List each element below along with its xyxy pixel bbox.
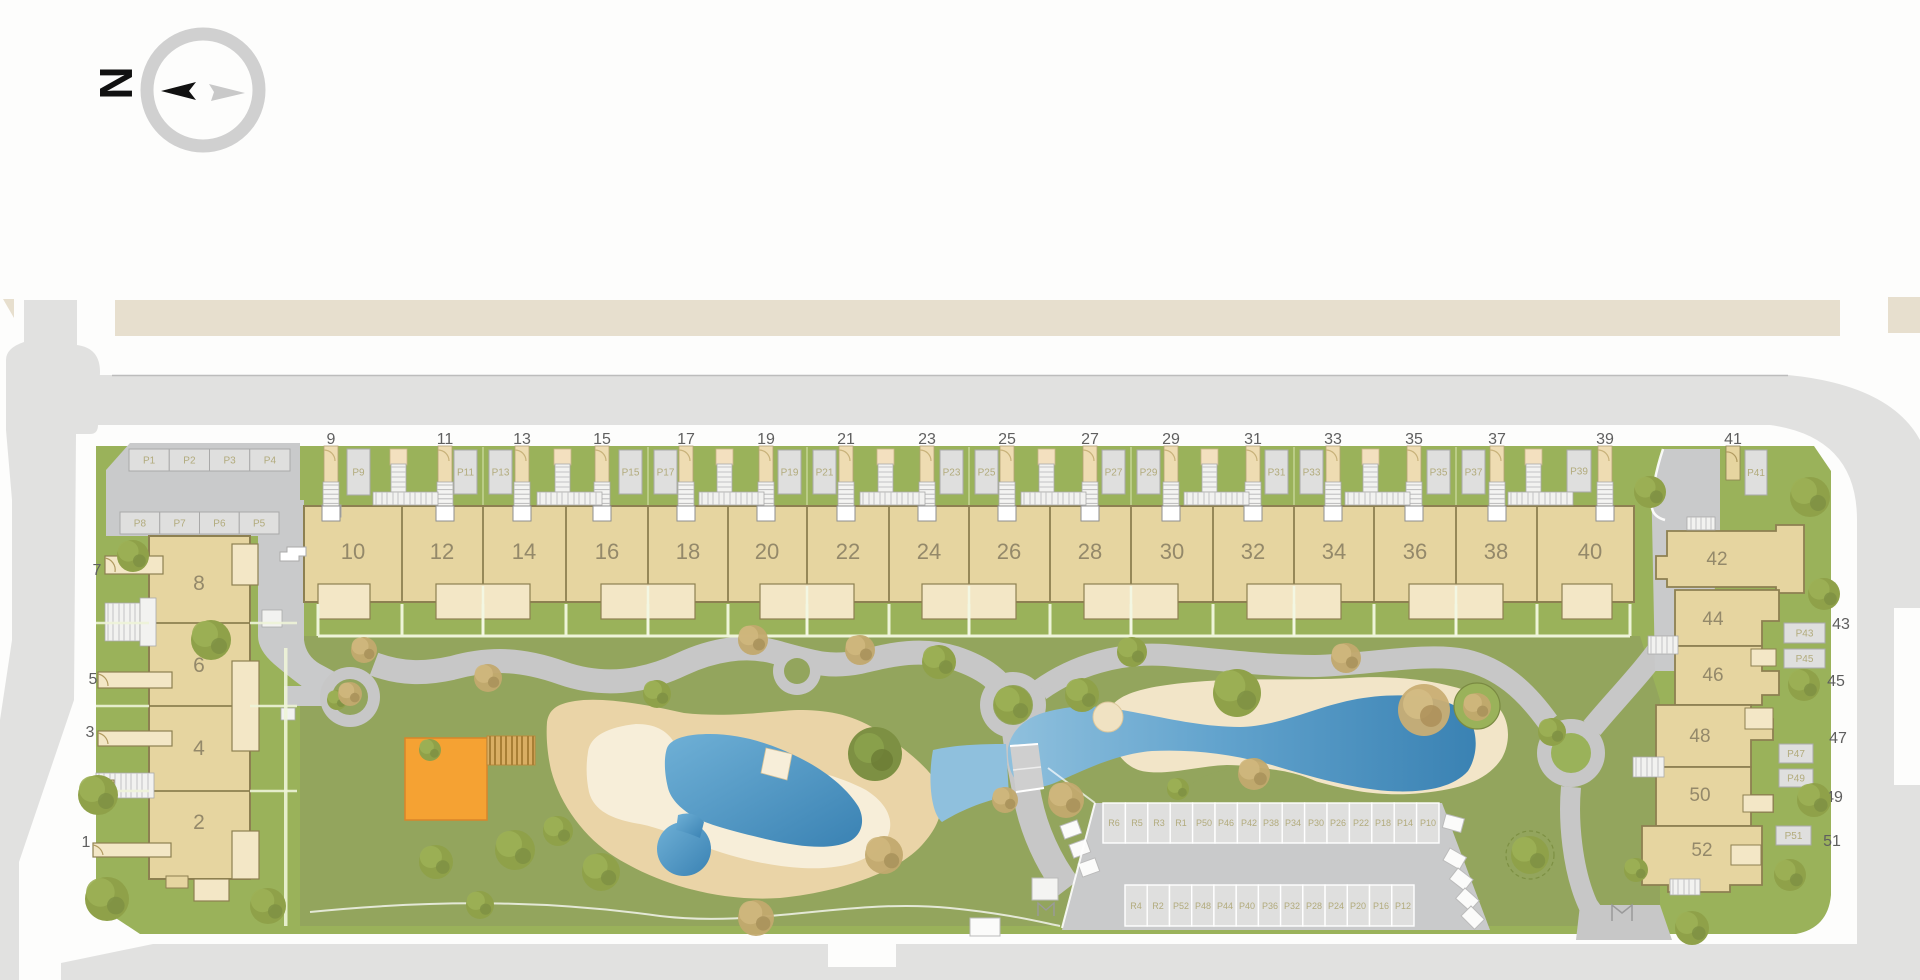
svg-text:9: 9 (327, 431, 336, 448)
svg-text:48: 48 (1689, 726, 1710, 747)
svg-text:P33: P33 (1303, 468, 1321, 479)
svg-text:P2: P2 (183, 456, 196, 467)
svg-text:12: 12 (430, 539, 454, 564)
svg-text:P25: P25 (978, 468, 996, 479)
svg-text:P6: P6 (213, 519, 226, 530)
svg-text:20: 20 (755, 539, 779, 564)
svg-text:R6: R6 (1108, 818, 1120, 828)
svg-text:51: 51 (1823, 833, 1841, 850)
svg-text:2: 2 (193, 811, 205, 834)
svg-text:40: 40 (1578, 539, 1602, 564)
svg-text:45: 45 (1827, 673, 1845, 690)
svg-text:4: 4 (193, 737, 205, 760)
svg-text:P3: P3 (223, 456, 236, 467)
svg-text:28: 28 (1078, 539, 1102, 564)
svg-text:25: 25 (998, 431, 1016, 448)
svg-text:27: 27 (1081, 431, 1099, 448)
svg-text:10: 10 (341, 539, 365, 564)
svg-text:P31: P31 (1268, 468, 1286, 479)
svg-text:P17: P17 (657, 468, 675, 479)
svg-text:P38: P38 (1263, 818, 1279, 828)
svg-text:8: 8 (193, 572, 205, 595)
svg-text:11: 11 (437, 431, 454, 448)
svg-text:P13: P13 (492, 468, 510, 479)
svg-text:26: 26 (997, 539, 1021, 564)
svg-text:34: 34 (1322, 539, 1346, 564)
svg-text:P32: P32 (1284, 901, 1300, 911)
svg-text:R3: R3 (1153, 818, 1165, 828)
svg-text:P12: P12 (1395, 901, 1411, 911)
svg-text:R1: R1 (1175, 818, 1187, 828)
svg-text:P29: P29 (1140, 468, 1158, 479)
svg-text:P30: P30 (1308, 818, 1324, 828)
svg-text:P5: P5 (253, 519, 266, 530)
svg-text:50: 50 (1689, 785, 1710, 806)
svg-text:35: 35 (1405, 431, 1423, 448)
svg-text:P27: P27 (1105, 468, 1123, 479)
svg-text:P39: P39 (1570, 467, 1588, 478)
svg-text:P52: P52 (1173, 901, 1189, 911)
svg-text:P26: P26 (1330, 818, 1346, 828)
svg-text:24: 24 (917, 539, 941, 564)
svg-text:1: 1 (82, 834, 91, 851)
svg-text:16: 16 (595, 539, 619, 564)
svg-text:P28: P28 (1306, 901, 1322, 911)
svg-text:P18: P18 (1375, 818, 1391, 828)
svg-text:P10: P10 (1420, 818, 1436, 828)
svg-text:P36: P36 (1262, 901, 1278, 911)
svg-text:P40: P40 (1239, 901, 1255, 911)
svg-text:29: 29 (1162, 431, 1180, 448)
svg-text:23: 23 (918, 431, 936, 448)
svg-text:P34: P34 (1285, 818, 1301, 828)
svg-text:38: 38 (1484, 539, 1508, 564)
svg-text:15: 15 (593, 431, 611, 448)
svg-text:P51: P51 (1785, 831, 1803, 842)
svg-text:P41: P41 (1747, 468, 1765, 479)
svg-text:18: 18 (676, 539, 700, 564)
svg-text:P42: P42 (1241, 818, 1257, 828)
svg-text:P48: P48 (1195, 901, 1211, 911)
svg-text:P11: P11 (457, 468, 474, 479)
svg-text:P14: P14 (1397, 818, 1413, 828)
svg-text:N: N (90, 66, 142, 99)
svg-text:37: 37 (1488, 431, 1506, 448)
svg-text:P20: P20 (1350, 901, 1366, 911)
svg-text:P15: P15 (622, 468, 640, 479)
svg-text:R5: R5 (1131, 818, 1143, 828)
svg-text:52: 52 (1691, 840, 1712, 861)
svg-text:P4: P4 (264, 456, 277, 467)
svg-text:32: 32 (1241, 539, 1265, 564)
svg-text:P24: P24 (1328, 901, 1344, 911)
svg-text:5: 5 (89, 671, 98, 688)
svg-text:P1: P1 (143, 456, 156, 467)
svg-text:3: 3 (86, 724, 95, 741)
svg-text:31: 31 (1244, 431, 1262, 448)
svg-text:30: 30 (1160, 539, 1184, 564)
svg-text:R4: R4 (1130, 901, 1142, 911)
svg-text:19: 19 (757, 431, 775, 448)
svg-text:13: 13 (513, 431, 531, 448)
svg-text:P19: P19 (781, 468, 799, 479)
svg-text:P45: P45 (1796, 654, 1814, 665)
svg-text:P8: P8 (134, 519, 147, 530)
svg-text:P43: P43 (1796, 629, 1814, 640)
svg-text:P44: P44 (1217, 901, 1233, 911)
svg-text:P16: P16 (1373, 901, 1389, 911)
svg-text:14: 14 (512, 539, 536, 564)
svg-text:47: 47 (1829, 730, 1847, 747)
svg-text:P47: P47 (1787, 749, 1805, 760)
svg-text:36: 36 (1403, 539, 1427, 564)
svg-text:7: 7 (93, 562, 102, 579)
svg-text:R2: R2 (1152, 901, 1164, 911)
svg-text:46: 46 (1702, 665, 1723, 686)
svg-text:22: 22 (836, 539, 860, 564)
svg-text:P9: P9 (352, 468, 365, 479)
svg-text:P46: P46 (1218, 818, 1234, 828)
svg-text:P22: P22 (1353, 818, 1369, 828)
svg-text:P49: P49 (1787, 774, 1805, 785)
svg-text:44: 44 (1702, 609, 1724, 630)
svg-text:39: 39 (1596, 431, 1614, 448)
svg-text:41: 41 (1724, 431, 1742, 448)
svg-text:P50: P50 (1196, 818, 1212, 828)
svg-text:42: 42 (1706, 549, 1727, 570)
svg-text:43: 43 (1832, 616, 1850, 633)
svg-text:17: 17 (677, 431, 695, 448)
svg-text:P21: P21 (816, 468, 834, 479)
svg-text:P35: P35 (1430, 468, 1448, 479)
svg-text:P37: P37 (1465, 468, 1483, 479)
svg-text:33: 33 (1324, 431, 1342, 448)
svg-text:P7: P7 (173, 519, 186, 530)
svg-text:P23: P23 (943, 468, 961, 479)
svg-text:21: 21 (837, 431, 855, 448)
